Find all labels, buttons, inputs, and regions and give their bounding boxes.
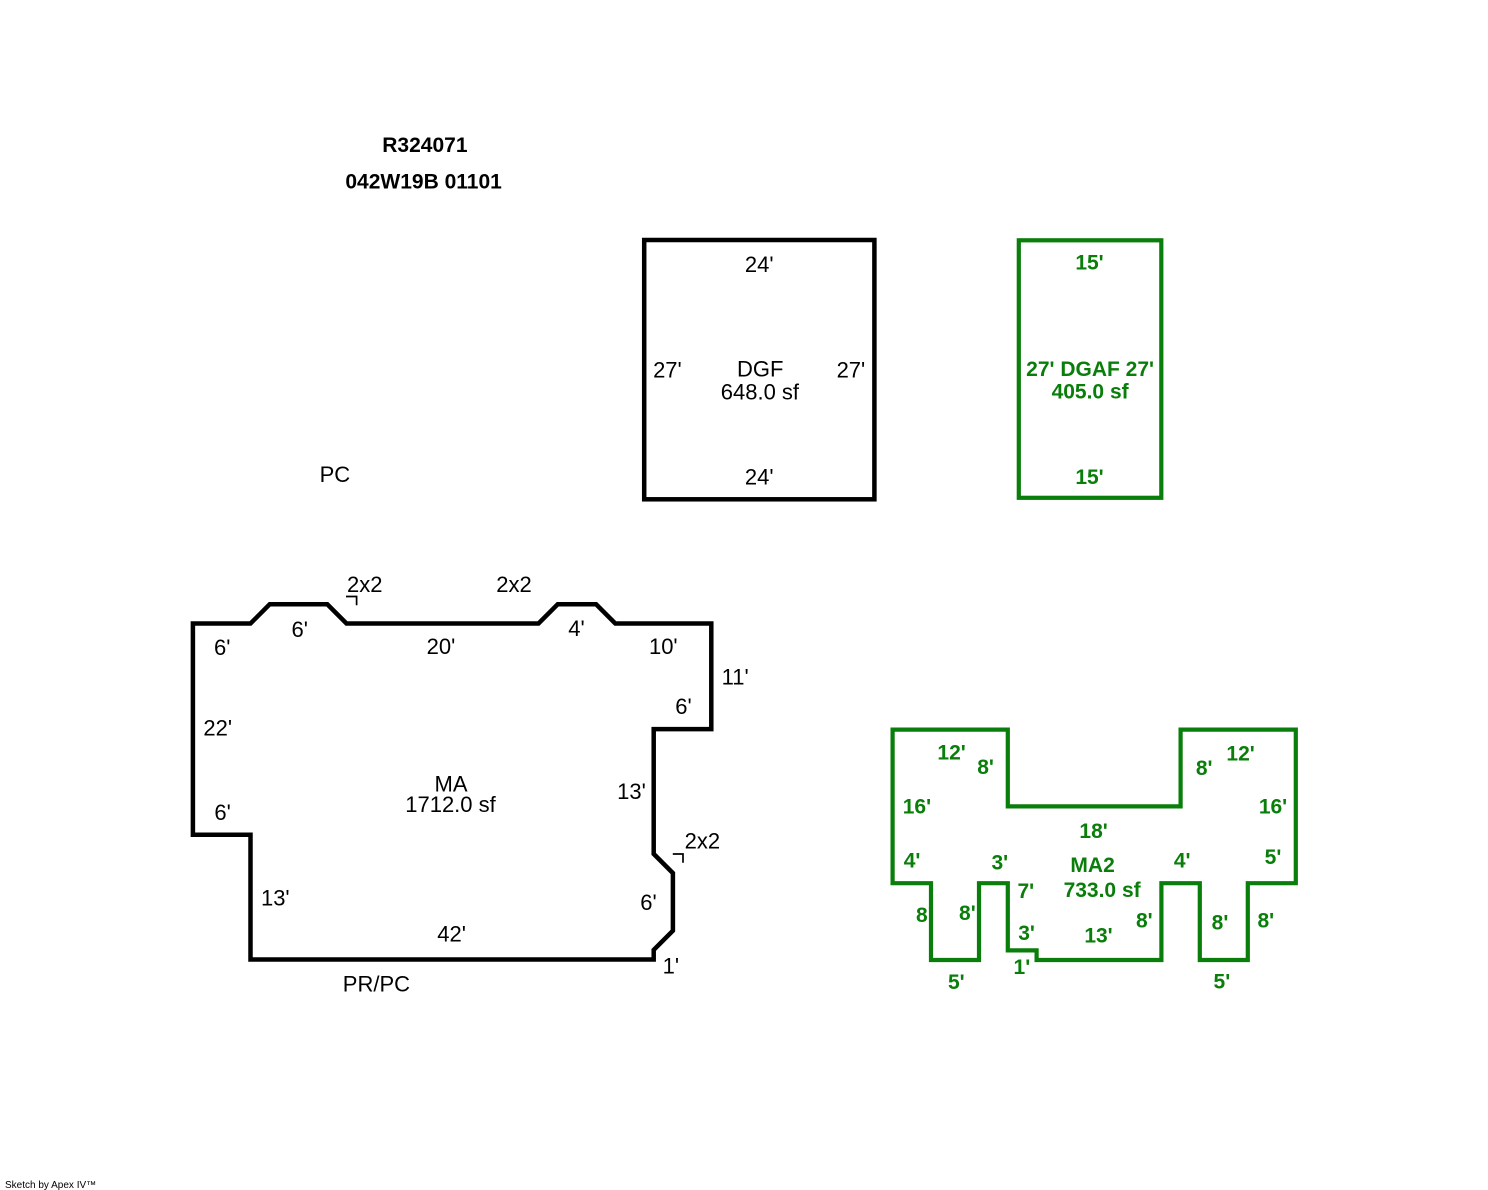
svg-text:1': 1'	[1014, 956, 1031, 979]
svg-text:5': 5'	[1214, 971, 1231, 994]
svg-text:11': 11'	[722, 665, 749, 690]
svg-text:6': 6'	[214, 635, 230, 660]
svg-text:4': 4'	[1174, 849, 1191, 872]
svg-text:042W19B 01101: 042W19B 01101	[345, 171, 502, 194]
svg-text:42': 42'	[437, 922, 466, 947]
svg-text:4': 4'	[568, 616, 584, 641]
svg-text:8': 8'	[1196, 757, 1213, 780]
svg-text:MA2: MA2	[1070, 854, 1114, 877]
svg-text:5': 5'	[948, 971, 965, 994]
svg-text:24': 24'	[745, 252, 774, 277]
svg-text:2x2: 2x2	[347, 572, 382, 597]
svg-text:27' DGAF 27': 27' DGAF 27'	[1026, 358, 1154, 381]
svg-text:24': 24'	[745, 465, 774, 490]
svg-text:27': 27'	[837, 357, 866, 382]
svg-text:22': 22'	[203, 715, 232, 740]
svg-text:6': 6'	[214, 800, 230, 825]
svg-text:12': 12'	[937, 742, 965, 765]
svg-text:1712.0 sf: 1712.0 sf	[405, 792, 496, 817]
svg-text:PR/PC: PR/PC	[343, 971, 410, 996]
svg-text:2x2: 2x2	[496, 572, 531, 597]
svg-text:8': 8'	[1136, 909, 1153, 932]
svg-text:20': 20'	[427, 634, 456, 659]
svg-text:4': 4'	[904, 849, 921, 872]
svg-text:8': 8'	[1212, 912, 1229, 935]
svg-text:7': 7'	[1017, 880, 1034, 903]
svg-text:8': 8'	[959, 902, 976, 925]
svg-text:3': 3'	[1018, 922, 1035, 945]
svg-text:6': 6'	[291, 617, 307, 642]
svg-text:6': 6'	[640, 890, 656, 915]
svg-text:648.0 sf: 648.0 sf	[721, 380, 800, 405]
svg-text:18': 18'	[1079, 820, 1107, 843]
svg-text:15': 15'	[1075, 252, 1103, 275]
svg-text:PC: PC	[320, 462, 351, 487]
svg-text:15': 15'	[1075, 466, 1103, 489]
svg-text:27': 27'	[653, 357, 682, 382]
svg-text:5': 5'	[1265, 846, 1282, 869]
svg-text:13': 13'	[617, 779, 646, 804]
svg-text:13': 13'	[261, 886, 290, 911]
svg-text:8': 8'	[977, 756, 994, 779]
svg-text:12': 12'	[1226, 743, 1254, 766]
svg-text:3': 3'	[991, 852, 1008, 875]
svg-text:2x2: 2x2	[685, 829, 720, 854]
svg-text:Sketch by Apex IV™: Sketch by Apex IV™	[5, 1180, 96, 1190]
svg-text:8': 8'	[1257, 909, 1274, 932]
svg-text:R324071: R324071	[382, 134, 468, 157]
svg-text:10': 10'	[649, 634, 678, 659]
svg-text:405.0 sf: 405.0 sf	[1052, 381, 1130, 404]
svg-text:6': 6'	[675, 694, 691, 719]
svg-text:16': 16'	[1259, 796, 1287, 819]
svg-text:1': 1'	[663, 954, 679, 979]
svg-text:8': 8'	[916, 904, 933, 927]
svg-text:13': 13'	[1084, 924, 1112, 947]
svg-text:16': 16'	[903, 796, 931, 819]
svg-text:733.0 sf: 733.0 sf	[1064, 879, 1142, 902]
svg-text:DGF: DGF	[737, 357, 783, 382]
